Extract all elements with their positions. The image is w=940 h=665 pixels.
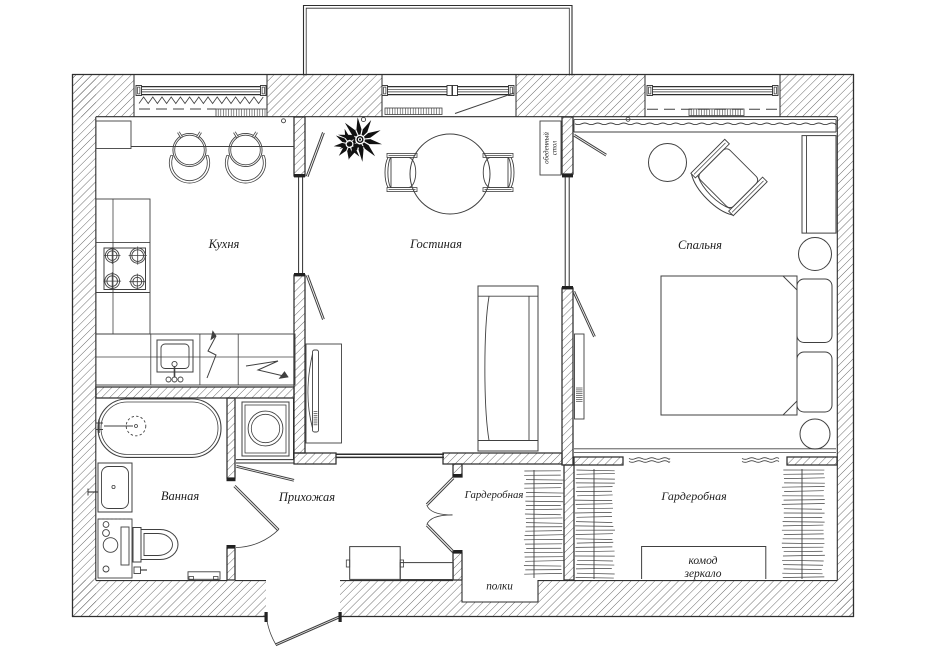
svg-text:обеденный: обеденный [543,132,551,164]
svg-text:Гостиная: Гостиная [409,237,462,251]
svg-text:Прихожая: Прихожая [278,490,335,504]
svg-text:зеркало: зеркало [683,568,721,580]
svg-text:Спальня: Спальня [678,238,722,252]
svg-text:комод: комод [688,555,717,567]
svg-text:Ванная: Ванная [161,489,200,503]
svg-text:стол: стол [551,141,559,156]
svg-text:Гардеробная: Гардеробная [464,489,524,501]
svg-text:полки: полки [486,581,513,593]
svg-text:Кухня: Кухня [208,237,240,251]
svg-text:Гардеробная: Гардеробная [660,489,727,503]
